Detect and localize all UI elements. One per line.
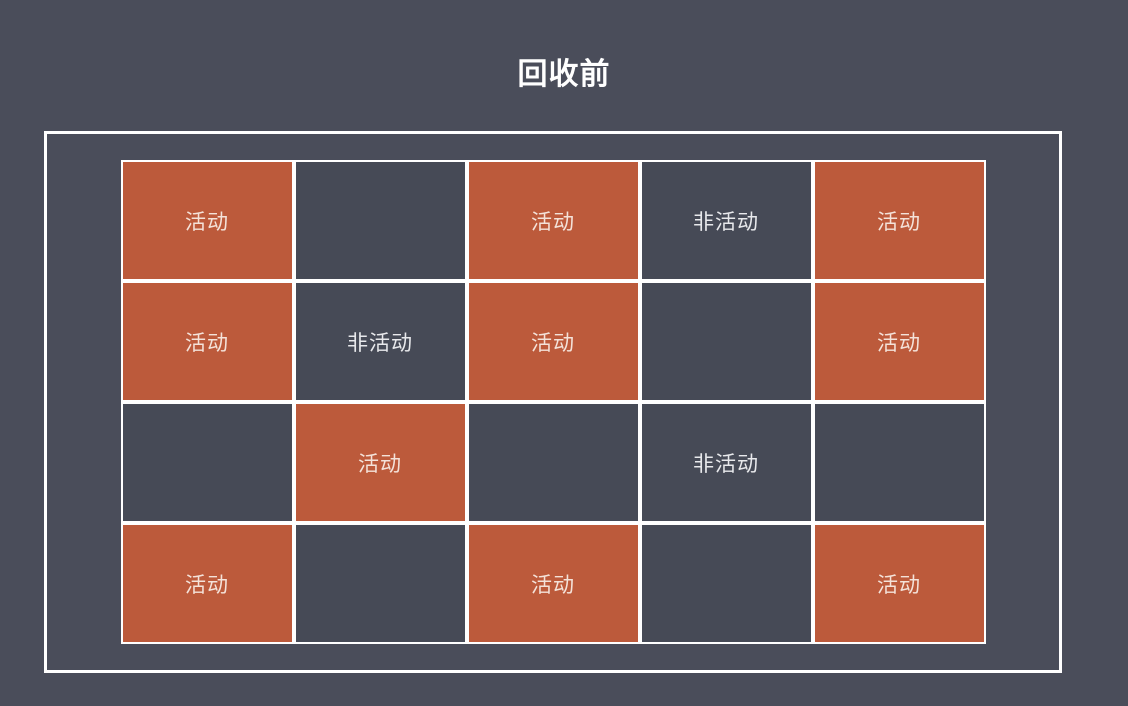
page-title: 回收前 (0, 60, 1128, 90)
memory-cell-active: 活动 (467, 523, 640, 644)
memory-grid: 活动活动非活动活动活动非活动活动活动活动非活动活动活动活动 (121, 160, 986, 644)
memory-cell-active: 活动 (467, 160, 640, 281)
memory-cell-empty (294, 523, 467, 644)
memory-cell-active: 活动 (121, 160, 294, 281)
memory-cell-empty (640, 281, 813, 402)
memory-cell-active: 活动 (121, 281, 294, 402)
memory-heap-container: 活动活动非活动活动活动非活动活动活动活动非活动活动活动活动 (44, 131, 1062, 673)
memory-cell-empty (121, 402, 294, 523)
memory-cell-active: 活动 (294, 402, 467, 523)
memory-cell-active: 活动 (121, 523, 294, 644)
memory-cell-active: 活动 (467, 281, 640, 402)
memory-cell-active: 活动 (813, 281, 986, 402)
memory-cell-inactive: 非活动 (640, 160, 813, 281)
memory-cell-empty (813, 402, 986, 523)
memory-cell-active: 活动 (813, 160, 986, 281)
memory-cell-empty (640, 523, 813, 644)
memory-cell-active: 活动 (813, 523, 986, 644)
memory-cell-inactive: 非活动 (640, 402, 813, 523)
memory-cell-inactive: 非活动 (294, 281, 467, 402)
memory-cell-empty (294, 160, 467, 281)
memory-cell-empty (467, 402, 640, 523)
